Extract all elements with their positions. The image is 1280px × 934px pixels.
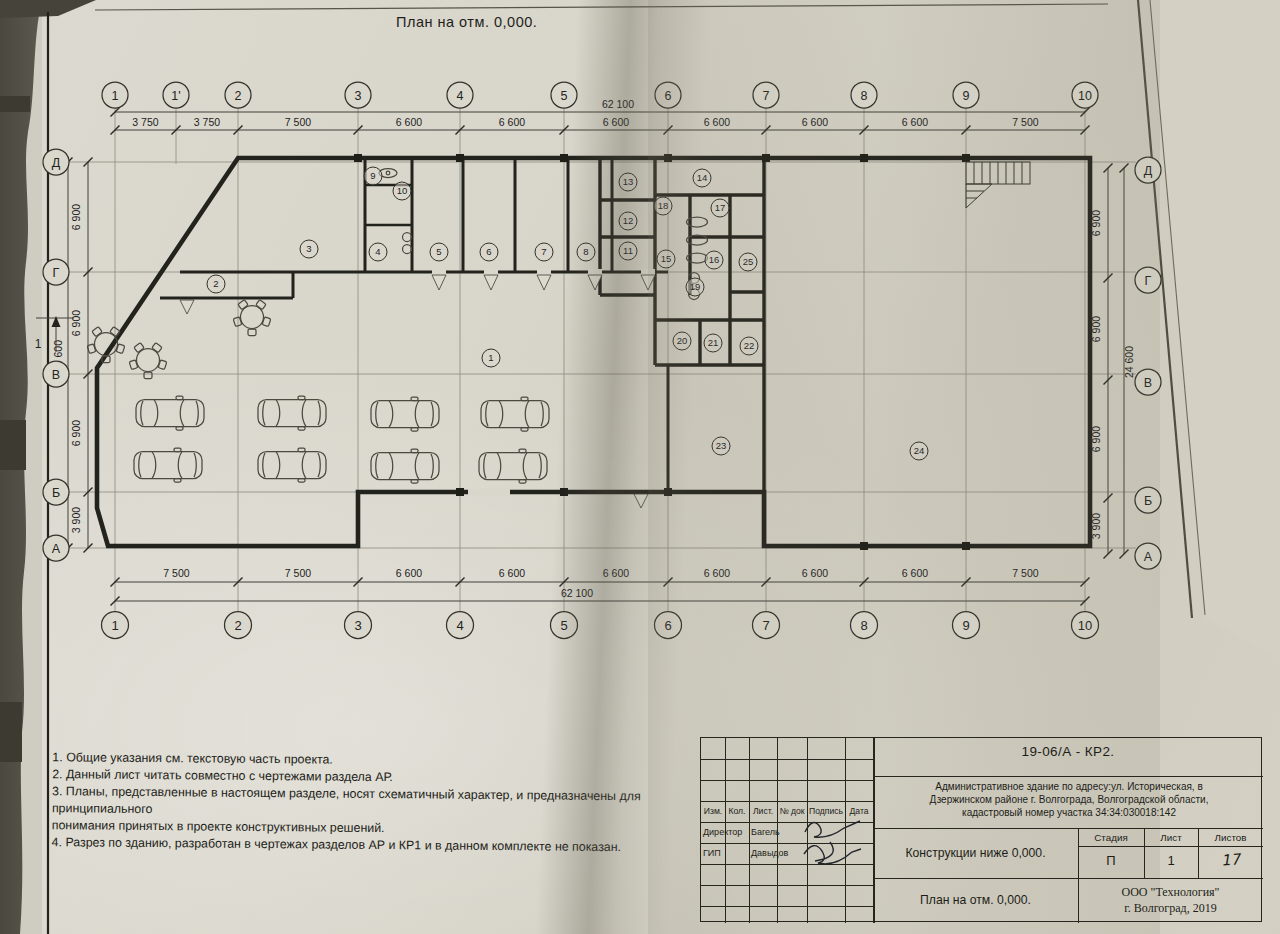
door-openings [180,269,655,508]
svg-text:12: 12 [623,215,634,226]
svg-text:4: 4 [456,618,463,633]
svg-text:6 600: 6 600 [902,116,928,128]
svg-text:8: 8 [861,89,868,103]
svg-text:3: 3 [354,618,361,633]
building-walls [97,154,1090,550]
svg-text:7: 7 [541,246,546,257]
title-block-line [701,801,873,802]
list-label: Лист [1144,832,1198,843]
svg-text:3 750: 3 750 [194,116,220,128]
svg-text:20: 20 [677,335,688,346]
svg-text:Г: Г [53,266,60,280]
dimension-lines: 3 7503 7507 5006 6006 6006 6006 6006 600… [52,98,1135,606]
svg-text:21: 21 [708,337,719,348]
project-name-line: кадастровый номер участка 34:34:030018:1… [879,807,1259,820]
svg-text:7: 7 [763,89,770,103]
svg-text:В: В [52,368,60,382]
svg-text:7 500: 7 500 [163,567,189,579]
svg-text:13: 13 [623,176,634,187]
svg-text:10: 10 [1078,618,1092,633]
signature-table-header: Лист. [749,806,777,816]
svg-text:3 900: 3 900 [70,507,82,533]
svg-text:5: 5 [436,246,441,257]
svg-text:7 500: 7 500 [1012,116,1038,128]
svg-text:6 900: 6 900 [1090,316,1102,342]
title-block-line [873,776,1263,777]
svg-text:8: 8 [583,246,588,257]
svg-text:7 500: 7 500 [285,567,311,579]
svg-text:1: 1 [35,337,42,351]
svg-text:25: 25 [743,256,754,267]
svg-text:А: А [1144,550,1153,564]
svg-text:7: 7 [762,618,769,633]
svg-text:2: 2 [235,89,242,103]
title-block: Изм.Кол.Лист.№ докПодписьДатаДиректорБаг… [700,737,1262,922]
svg-text:Д: Д [1144,164,1153,178]
title-block-line [1078,846,1263,847]
svg-text:16: 16 [709,254,720,265]
round-table-icon [233,300,271,336]
project-name-line: Дзержинском районе г. Волгограда, Волгог… [879,794,1259,807]
svg-text:2: 2 [234,618,241,633]
car-icon [371,397,439,431]
svg-text:23: 23 [716,440,727,451]
car-icon [481,397,549,431]
svg-text:1: 1 [488,352,493,363]
axis-and-room-labels: 11'234567891012345678910ДДГГВВББАА123456… [35,82,1161,639]
svg-text:18: 18 [658,200,669,211]
svg-text:5: 5 [561,89,568,103]
plan-title: План на отм. 0,000. [396,14,537,30]
svg-text:6: 6 [665,89,672,103]
svg-text:6 600: 6 600 [902,567,928,579]
svg-text:6: 6 [664,618,671,633]
signature-gip [804,842,861,864]
title-block-line [701,885,873,886]
svg-text:6 600: 6 600 [704,567,730,579]
svg-text:6 900: 6 900 [70,420,82,446]
signature-table-header: Кол. [725,806,749,816]
svg-text:В: В [1144,376,1152,390]
car-icon [258,448,326,482]
svg-text:7 500: 7 500 [1012,567,1038,579]
lists-label: Листов [1198,832,1263,843]
svg-text:9: 9 [963,89,970,103]
svg-text:7 500: 7 500 [285,116,311,128]
svg-text:3 900: 3 900 [1090,513,1102,539]
photo-of-drawing-sheet: 3 7503 7507 5006 6006 6006 6006 6006 600… [0,0,1280,934]
car-icon [371,449,439,483]
svg-text:1: 1 [112,89,119,103]
svg-text:14: 14 [697,172,708,183]
svg-text:6 600: 6 600 [499,567,525,579]
stage-label: Стадия [1078,832,1144,843]
svg-text:Б: Б [52,486,60,500]
svg-text:6 600: 6 600 [603,567,629,579]
svg-text:4: 4 [375,246,380,257]
staircase [966,162,1030,208]
sheet-name-structures: Конструкции ниже 0,000. [873,828,1078,878]
svg-text:6 900: 6 900 [1090,210,1102,236]
car-icon [134,448,202,482]
svg-text:6: 6 [486,246,491,257]
svg-text:6 600: 6 600 [704,116,730,128]
svg-text:4: 4 [457,89,464,103]
svg-text:3 750: 3 750 [132,116,158,128]
svg-text:15: 15 [661,253,672,264]
lists-value-handwritten: 17 [1197,848,1263,872]
svg-text:1': 1' [171,89,180,103]
svg-text:6 600: 6 600 [396,116,422,128]
note-line: 3. Планы, представленные в настоящем раз… [52,783,700,823]
title-block-line [701,906,873,907]
svg-text:Д: Д [52,156,61,170]
svg-text:3: 3 [355,89,362,103]
svg-text:6 600: 6 600 [603,116,629,128]
document-code: 19-06/А - КР2. [873,744,1263,759]
svg-text:8: 8 [860,618,867,633]
svg-text:1: 1 [111,618,118,633]
svg-text:9: 9 [962,618,969,633]
general-notes: 1. Общие указания см. текстовую часть пр… [52,749,701,857]
svg-text:5: 5 [560,618,567,633]
round-table-icon [129,343,167,379]
title-block-line [701,759,873,760]
svg-text:24: 24 [914,445,925,456]
svg-text:62 100: 62 100 [561,587,593,599]
svg-text:22: 22 [744,340,755,351]
svg-text:19: 19 [690,281,701,292]
svg-text:11: 11 [623,245,633,256]
svg-text:10: 10 [1078,89,1092,103]
sheet-name-plan: План на отм. 0,000. [873,878,1078,923]
car-icon [258,396,326,430]
svg-text:6 900: 6 900 [1090,426,1102,452]
signature-director [805,821,860,837]
svg-text:Б: Б [1144,494,1152,508]
stage-value: П [1078,853,1144,868]
svg-text:9: 9 [370,170,375,181]
svg-text:6 600: 6 600 [802,567,828,579]
svg-text:Г: Г [1145,274,1152,288]
signature-table-header: Изм. [701,806,725,816]
svg-text:10: 10 [397,185,408,196]
svg-text:17: 17 [715,202,726,213]
car-icon [136,396,204,430]
svg-text:6 900: 6 900 [70,204,82,230]
company-place-year: г. Волгоград, 2019 [1078,901,1263,916]
project-name-line: Административное здание по адресу:ул. Ис… [879,781,1259,794]
svg-text:6 600: 6 600 [802,116,828,128]
svg-text:24 600: 24 600 [1123,346,1135,378]
title-block-line [701,780,873,781]
svg-text:6 900: 6 900 [70,310,82,336]
car-icon [479,449,547,483]
svg-text:6 600: 6 600 [499,116,525,128]
list-value: 1 [1144,853,1198,868]
project-name: Административное здание по адресу:ул. Ис… [879,781,1259,819]
svg-text:2: 2 [213,278,218,289]
furniture-layer [87,162,1030,483]
svg-text:3: 3 [306,243,311,254]
signatures [799,806,877,868]
svg-text:62 100: 62 100 [602,98,634,110]
svg-text:6 600: 6 600 [396,567,422,579]
company-name: ООО "Технология" [1078,885,1263,900]
svg-text:А: А [52,542,61,556]
